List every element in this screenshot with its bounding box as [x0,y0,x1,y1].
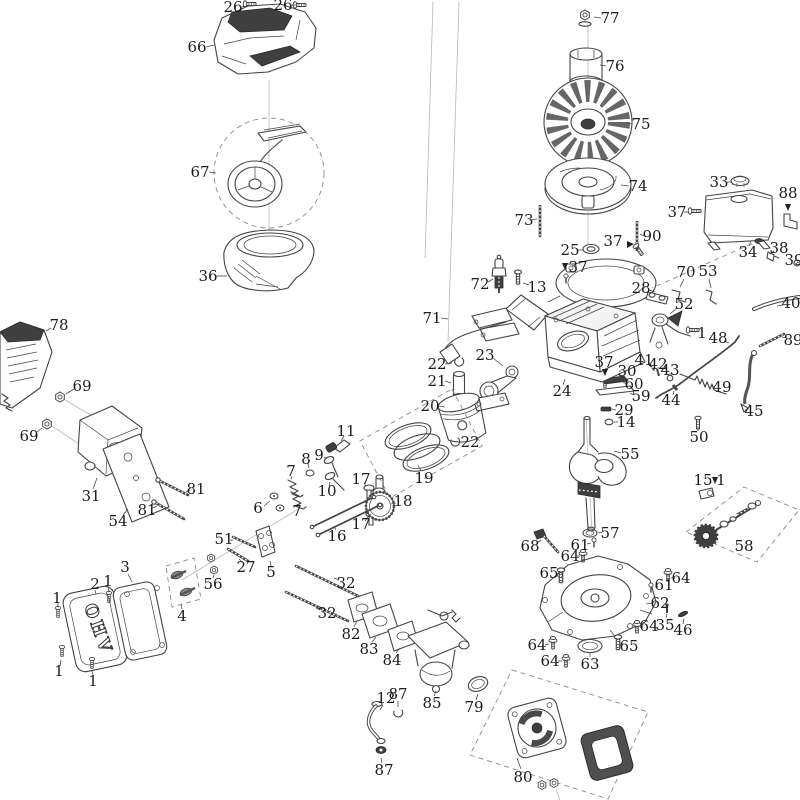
part-label-80: 80 [513,768,532,786]
part-label-6: 6 [253,499,263,517]
part-label-32: 32 [317,604,336,622]
part-label-72: 72 [470,275,489,293]
part-label-20: 20 [420,397,439,415]
part-label-81: 81 [137,501,156,519]
part-label-76: 76 [605,57,624,75]
governor-rod-89 [760,334,784,346]
part-label-28: 28 [631,279,650,297]
part-label-1: 1 [697,324,707,342]
part-label-83: 83 [359,640,378,658]
part-label-17: 17 [351,470,370,488]
part-label-46: 46 [673,621,692,639]
part-label-1: 1 [88,672,98,690]
part-label-25: 25 [560,241,579,259]
plug-46 [678,610,689,618]
part-label-35: 35 [655,616,674,634]
part-label-63: 63 [580,655,599,673]
bolt-1 [59,645,64,656]
fuel-cap [731,176,749,187]
part-label-88: 88 [778,184,797,202]
part-label-37: 37 [603,232,622,250]
part-label-84: 84 [382,651,401,669]
part-label-59: 59 [631,387,650,405]
part-label-45: 45 [744,402,763,420]
carb-gasket-79 [466,674,490,694]
part-label-40: 40 [781,294,800,312]
bolt-64 [562,655,570,668]
connecting-rod [473,366,518,411]
part-label-64: 64 [671,569,690,587]
part-label-87: 87 [388,685,407,703]
leader-line [264,501,270,506]
part-label-89: 89 [783,331,800,349]
part-label-31: 31 [81,487,100,505]
leader-line [441,318,448,319]
part-label-43: 43 [660,361,679,379]
clutch-assembly [470,670,648,800]
part-label-53: 53 [698,262,717,280]
part-label-39: 39 [784,251,800,269]
part-label-1: 1 [54,662,64,680]
part-label-65: 65 [619,637,638,655]
blower-housing [224,230,314,291]
rocker-plate [256,526,275,557]
part-label-73: 73 [514,211,533,229]
part-label-71: 71 [422,309,441,327]
part-labels: 2626666736777675747325373790338837343839… [19,0,800,786]
crankshaft [569,417,626,531]
part-label-17: 17 [351,515,370,533]
part-label-11: 11 [336,422,355,440]
part-label-33: 33 [709,173,728,191]
part-label-66: 66 [187,38,206,56]
part-label-1: 1 [716,471,726,489]
part-label-44: 44 [661,391,680,409]
part-label-67: 67 [190,163,209,181]
part-label-27: 27 [236,558,255,576]
part-label-1: 1 [52,589,62,607]
part-label-57: 57 [600,524,619,542]
part-label-18: 18 [393,492,412,510]
nut-56 [208,554,215,562]
part-label-7: 7 [292,502,302,520]
part-label-22: 22 [460,433,479,451]
part-label-37: 37 [667,203,686,221]
muffler-guard [0,322,52,411]
part-label-68: 68 [520,537,539,555]
nut-56 [211,566,218,574]
part-label-9: 9 [314,446,324,464]
part-label-32: 32 [336,574,355,592]
part-label-2: 2 [90,575,100,593]
part-label-77: 77 [600,9,619,27]
flywheel-nut [579,10,591,26]
part-label-55: 55 [620,445,639,463]
part-label-21: 21 [427,372,446,390]
part-label-26: 26 [273,0,292,14]
screw-61 [592,538,596,548]
parts-diagram: OHV [0,0,800,800]
bolt-37 [688,208,701,214]
part-label-5: 5 [266,563,276,581]
bolt-13 [514,270,521,284]
part-label-62: 62 [650,594,669,612]
governor-arm [650,311,690,348]
part-label-79: 79 [464,698,483,716]
part-label-3: 3 [120,558,130,576]
part-label-19: 19 [414,469,433,487]
part-label-54: 54 [108,512,127,530]
part-label-37: 37 [568,258,587,276]
part-label-75: 75 [631,115,650,133]
spark-plug [492,255,506,293]
part-label-23: 23 [475,346,494,364]
tank-bracket-88 [784,214,797,229]
part-label-1: 1 [103,572,113,590]
part-label-74: 74 [628,177,647,195]
carburetor [408,610,469,693]
part-label-52: 52 [674,295,693,313]
flywheel-fan [544,78,632,166]
leader-line [209,172,216,173]
leader-line [206,45,214,47]
flywheel [545,158,631,214]
bolt-64 [549,637,557,650]
part-label-70: 70 [676,263,695,281]
part-label-37: 37 [594,353,613,371]
part-label-81: 81 [186,480,205,498]
part-label-69: 69 [19,427,38,445]
breather-tube [369,702,385,744]
part-label-16: 16 [327,527,346,545]
part-label-14: 14 [616,413,635,431]
part-label-50: 50 [689,428,708,446]
part-label-36: 36 [198,267,217,285]
leader-line [709,279,711,288]
part-label-51: 51 [214,530,233,548]
tube-clips [376,710,403,754]
part-label-87: 87 [374,761,393,779]
part-label-48: 48 [708,329,727,347]
part-label-61: 61 [654,576,673,594]
part-label-82: 82 [341,625,360,643]
part-label-13: 13 [527,278,546,296]
part-label-10: 10 [317,482,336,500]
part-label-64: 64 [560,547,579,565]
part-label-22: 22 [427,355,446,373]
part-label-7: 7 [286,462,296,480]
pointer-arrow-icon [785,204,791,211]
nut [550,779,558,788]
part-label-64: 64 [540,652,559,670]
nut-69 [43,419,52,429]
part-label-34: 34 [738,243,757,261]
part-label-4: 4 [177,607,187,625]
bracket-15 [699,488,714,499]
nut [538,781,546,790]
part-label-15: 15 [693,471,712,489]
part-label-78: 78 [49,316,68,334]
part-label-49: 49 [712,378,731,396]
rocker-arms [166,558,201,607]
bolt-1 [55,606,60,617]
part-label-58: 58 [734,537,753,555]
part-label-90: 90 [642,227,661,245]
fuel-tank [704,190,773,250]
part-label-26: 26 [223,0,242,16]
oil-seal-63 [578,640,602,653]
part-label-8: 8 [301,450,311,468]
part-label-69: 69 [72,377,91,395]
part-label-56: 56 [203,575,222,593]
grommet-25 [583,245,599,254]
part-label-24: 24 [552,382,571,400]
part-label-85: 85 [422,694,441,712]
part-label-65: 65 [539,564,558,582]
nut-69 [56,392,65,402]
